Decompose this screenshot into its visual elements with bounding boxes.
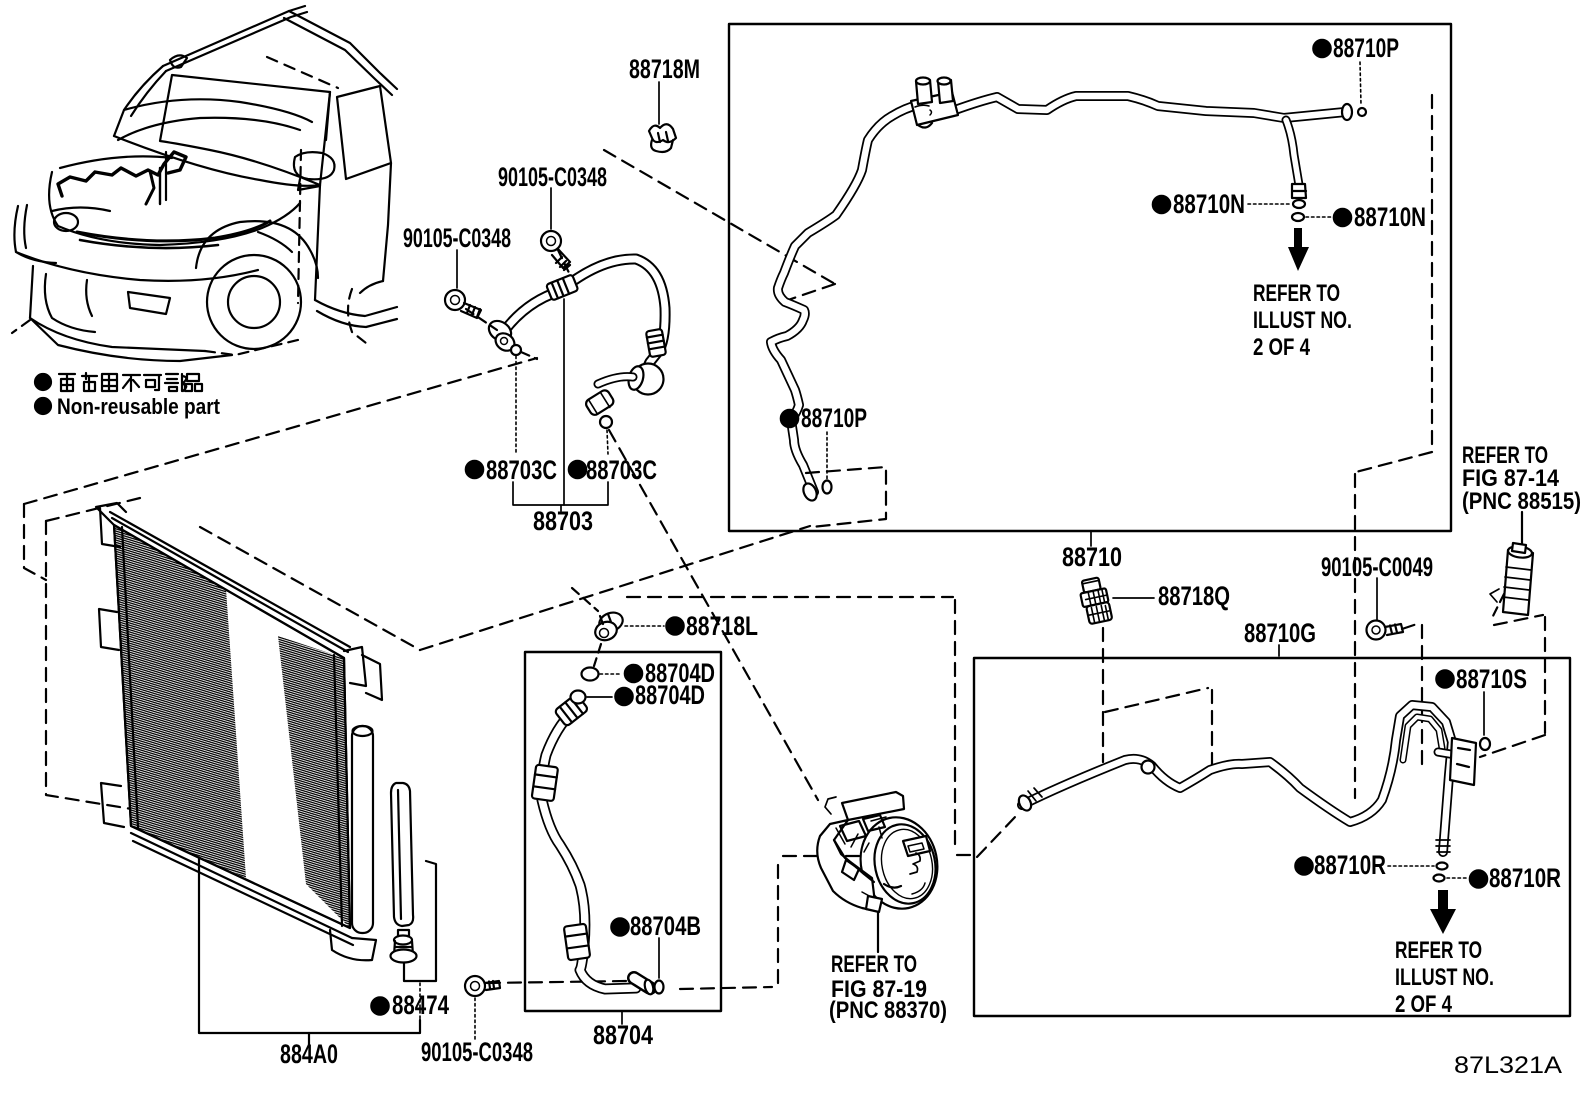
svg-text:88718M: 88718M <box>629 54 700 84</box>
svg-text:88710N: 88710N <box>1354 202 1426 232</box>
svg-text:87L321A: 87L321A <box>1454 1052 1562 1079</box>
svg-text:2 OF 4: 2 OF 4 <box>1395 991 1453 1018</box>
svg-text:884A0: 884A0 <box>280 1039 338 1069</box>
svg-text:ILLUST NO.: ILLUST NO. <box>1395 964 1494 991</box>
svg-text:90105-C0348: 90105-C0348 <box>498 162 607 192</box>
svg-text:88718L: 88718L <box>686 611 758 641</box>
svg-text:88718Q: 88718Q <box>1158 581 1230 611</box>
svg-text:88710P: 88710P <box>1333 33 1399 63</box>
svg-text:ILLUST NO.: ILLUST NO. <box>1253 307 1352 334</box>
svg-text:(PNC 88370): (PNC 88370) <box>829 997 947 1024</box>
svg-text:88710R: 88710R <box>1314 850 1386 880</box>
svg-text:88710S: 88710S <box>1456 664 1527 694</box>
svg-text:88710P: 88710P <box>801 403 867 433</box>
svg-text:REFER TO: REFER TO <box>831 951 917 978</box>
svg-text:88710: 88710 <box>1062 542 1122 572</box>
svg-text:88710N: 88710N <box>1173 189 1245 219</box>
svg-text:88703: 88703 <box>533 506 593 536</box>
svg-text:88474: 88474 <box>392 990 449 1020</box>
svg-text:REFER TO: REFER TO <box>1395 937 1482 964</box>
svg-text:88704: 88704 <box>593 1020 653 1050</box>
svg-text:88704D: 88704D <box>635 680 705 710</box>
svg-text:REFER TO: REFER TO <box>1253 280 1340 307</box>
svg-text:90105-C0348: 90105-C0348 <box>403 223 511 253</box>
svg-text:88703C: 88703C <box>486 455 557 485</box>
svg-text:2 OF 4: 2 OF 4 <box>1253 334 1311 361</box>
svg-text:88703C: 88703C <box>586 455 657 485</box>
svg-text:(PNC 88515): (PNC 88515) <box>1462 488 1581 515</box>
svg-text:88704B: 88704B <box>630 911 701 941</box>
svg-text:90105-C0348: 90105-C0348 <box>421 1037 533 1067</box>
svg-text:Non-reusable part: Non-reusable part <box>57 394 221 419</box>
svg-text:88710G: 88710G <box>1244 618 1316 648</box>
svg-text:88710R: 88710R <box>1489 863 1561 893</box>
